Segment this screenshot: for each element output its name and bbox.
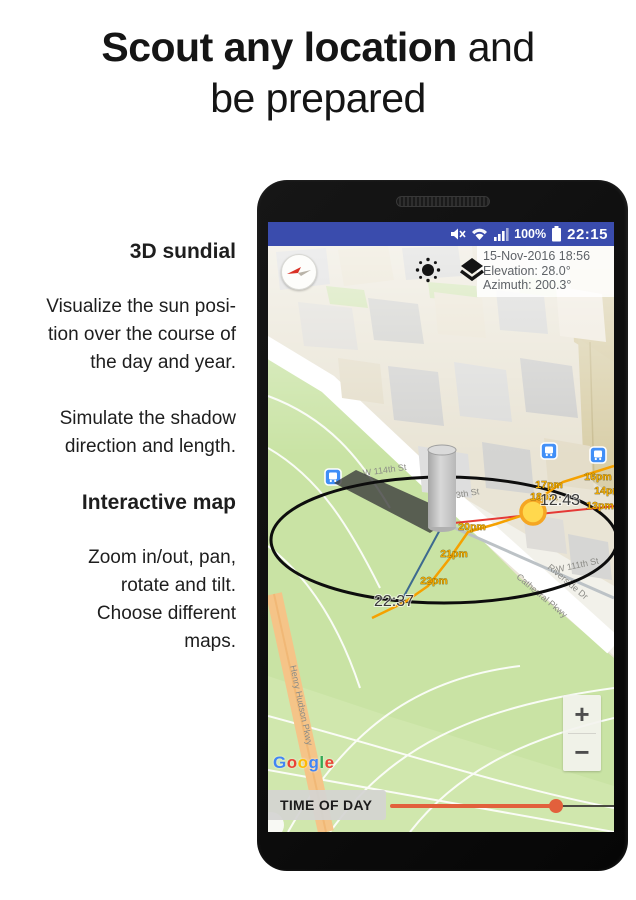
zoom-out-button[interactable]: −	[563, 734, 601, 772]
feature-text-sundial: Visualize the sun posi- tion over the co…	[16, 293, 236, 377]
battery-percent: 100%	[514, 227, 546, 241]
wifi-icon	[471, 227, 488, 241]
google-logo: Google	[273, 753, 335, 773]
signal-strength-icon	[493, 228, 509, 241]
hour-label-17: 17pm	[535, 479, 562, 491]
hour-label-21: 21pm	[440, 548, 467, 560]
time-of-day-label: TIME OF DAY	[268, 790, 386, 820]
google-letter: o	[298, 753, 309, 772]
noon-time-label: 12:43	[540, 492, 580, 509]
zoom-control: + −	[563, 695, 601, 771]
compass-button[interactable]	[281, 254, 317, 290]
time-of-day-slider[interactable]	[390, 798, 614, 814]
headline-line1: Scout any location and	[0, 22, 636, 73]
layers-button[interactable]	[458, 255, 486, 283]
hour-label-13: 13pm	[586, 500, 613, 512]
battery-full-icon	[551, 226, 562, 242]
slider-track-filled[interactable]	[390, 804, 556, 808]
feature-text-shadow: Simulate the shadow direction and length…	[16, 405, 236, 461]
gnomon-body	[428, 450, 456, 527]
status-clock: 22:15	[567, 226, 608, 243]
end-time-label: 22:37	[374, 593, 414, 610]
feature-title-sundial: 3D sundial	[16, 238, 236, 265]
headline-line2: be prepared	[0, 73, 636, 124]
sun-icon	[414, 256, 442, 284]
phone-speaker	[396, 196, 490, 207]
google-letter: o	[287, 753, 298, 772]
slider-track-rest[interactable]	[556, 805, 614, 807]
google-letter: g	[309, 753, 320, 772]
gnomon-top	[428, 445, 456, 455]
info-azimuth: Azimuth: 200.3°	[483, 278, 609, 293]
feature-text-map: Zoom in/out, pan, rotate and tilt. Choos…	[16, 544, 236, 656]
volume-mute-icon	[450, 227, 466, 241]
info-datetime: 15-Nov-2016 18:56	[483, 249, 609, 264]
phone-mockup: 100% 22:15	[257, 180, 628, 871]
slider-thumb[interactable]	[549, 799, 563, 813]
sun-mode-button[interactable]	[414, 256, 442, 284]
zoom-in-button[interactable]: +	[563, 695, 601, 733]
map-view[interactable]: W 114th St W 113th St W 111th St Riversi…	[268, 246, 614, 832]
info-elevation: Elevation: 28.0°	[483, 264, 609, 279]
headline-suffix: and	[457, 24, 535, 70]
headline: Scout any location and be prepared	[0, 22, 636, 124]
hour-label-22: 22pm	[420, 575, 447, 587]
sun-info-panel: 15-Nov-2016 18:56 Elevation: 28.0° Azimu…	[477, 246, 614, 297]
phone-screen: 100% 22:15	[268, 222, 614, 832]
compass-needle-icon	[282, 255, 316, 289]
google-letter: e	[325, 753, 335, 772]
status-bar: 100% 22:15	[268, 222, 614, 246]
feature-title-map: Interactive map	[16, 489, 236, 516]
layers-icon	[458, 255, 486, 283]
hour-label-16: 16pm	[584, 471, 611, 483]
google-letter: G	[273, 753, 287, 772]
feature-column: 3D sundial Visualize the sun posi- tion …	[16, 238, 236, 656]
headline-bold: Scout any location	[101, 24, 457, 70]
hour-label-20: 20pm	[458, 521, 485, 533]
hour-label-14: 14pm	[594, 485, 614, 497]
